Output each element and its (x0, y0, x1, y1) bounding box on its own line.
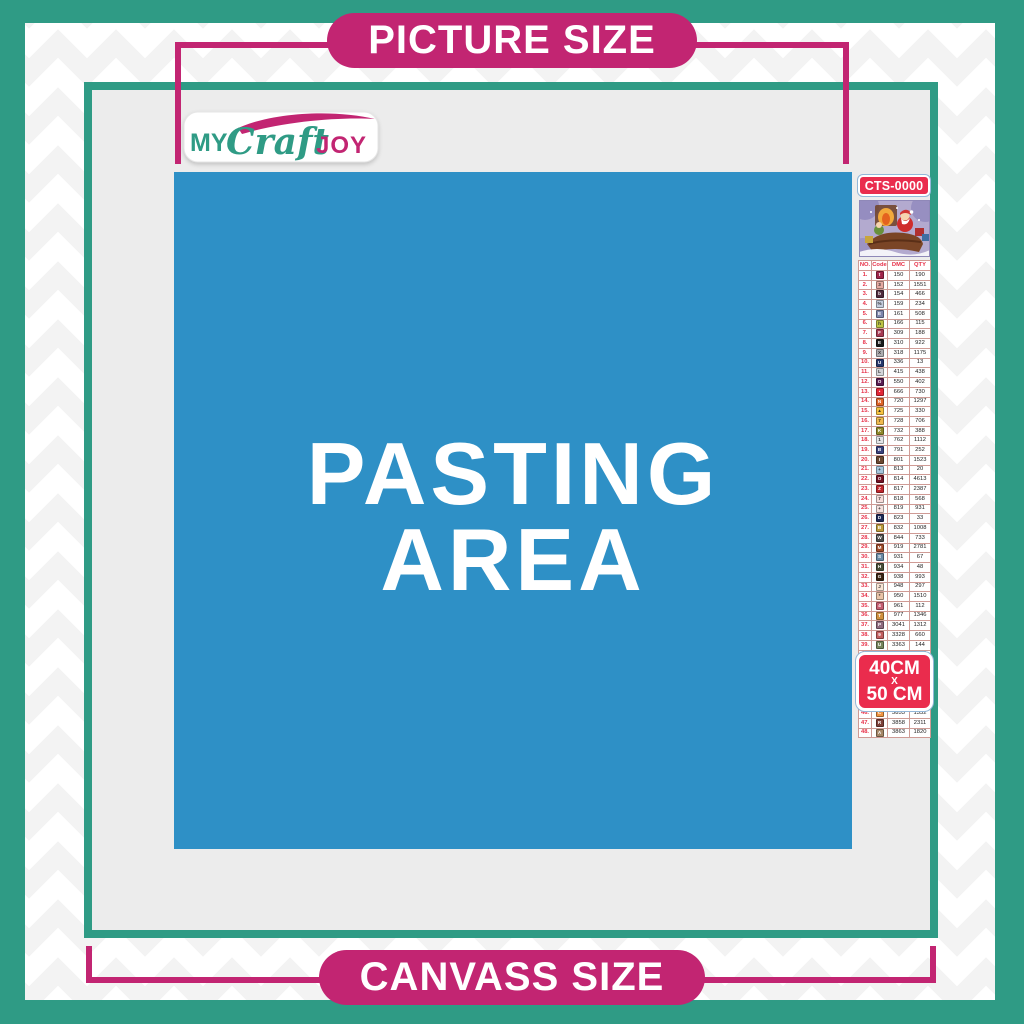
color-symbol-swatch: K (876, 427, 884, 435)
product-sheet: PICTURE SIZE CANVASS SIZE MY Craft JOY P… (0, 0, 1024, 1024)
color-symbol-swatch: L (876, 368, 884, 376)
chart-row: 15.▲725330 (859, 407, 931, 417)
chart-row: 19.B791252 (859, 446, 931, 456)
chart-row: 28.W844733 (859, 533, 931, 543)
color-symbol-swatch: N (876, 398, 884, 406)
color-symbol-swatch: 7 (876, 495, 884, 503)
chart-row: 36.T9771346 (859, 611, 931, 621)
color-symbol-swatch: G (876, 573, 884, 581)
pasting-area-label: PASTING AREA (307, 431, 720, 602)
color-symbol-swatch: 9 (876, 631, 884, 639)
chart-column-header: QTY (910, 261, 931, 271)
chart-row: 39.U3363144 (859, 640, 931, 650)
chart-row: 18.17621112 (859, 436, 931, 446)
logo-word-joy: JOY (316, 132, 367, 159)
chart-row: 8.E310922 (859, 339, 931, 349)
chart-row: 12.O550402 (859, 378, 931, 388)
chart-row: 13.•666730 (859, 387, 931, 397)
color-symbol-swatch: 1 (876, 436, 884, 444)
color-symbol-swatch: ▲ (876, 407, 884, 415)
color-symbol-swatch: 7 (876, 417, 884, 425)
color-symbol-swatch: 4 (876, 602, 884, 610)
chart-row: 2.31521551 (859, 280, 931, 290)
chart-row: 29.M9192781 (859, 543, 931, 553)
chart-row: 38.93328660 (859, 631, 931, 641)
color-symbol-swatch: * (876, 592, 884, 600)
size-badge: 40CM X 50 CM (856, 652, 933, 711)
chart-row: 14.N7201297 (859, 397, 931, 407)
color-symbol-swatch: A (876, 729, 884, 737)
chart-row: 26.D82333 (859, 514, 931, 524)
color-symbol-swatch: P (876, 621, 884, 629)
chart-row: 27.B8321008 (859, 524, 931, 534)
chart-row: 9.X3181175 (859, 348, 931, 358)
color-symbol-swatch: J (876, 583, 884, 591)
chart-row: 30.S93167 (859, 553, 931, 563)
chart-row: 34.*9501510 (859, 592, 931, 602)
color-symbol-swatch: t (876, 271, 884, 279)
color-symbol-swatch: T (876, 612, 884, 620)
chart-row: 6.h166115 (859, 319, 931, 329)
chart-row: 20.I8011523 (859, 455, 931, 465)
product-code-badge: CTS-0000 (858, 175, 930, 196)
picture-bracket-right (843, 42, 849, 164)
color-symbol-swatch: H (876, 563, 884, 571)
picture-bracket-left (175, 42, 181, 164)
picture-size-label: PICTURE SIZE (368, 18, 656, 63)
color-symbol-swatch: % (876, 300, 884, 308)
logo-word-my: MY (190, 129, 228, 157)
chart-row: 11.L415438 (859, 368, 931, 378)
color-symbol-swatch: M (876, 544, 884, 552)
chart-header-row: NO.CodeDMCQTY (859, 261, 931, 271)
chart-row: 32.G938993 (859, 572, 931, 582)
product-code: CTS-0000 (865, 179, 924, 193)
chart-row: 21.+81320 (859, 465, 931, 475)
chart-row: 48.A38631820 (859, 728, 931, 738)
chart-column-header: NO. (859, 261, 872, 271)
chart-row: 31.H93448 (859, 563, 931, 573)
chart-row: 23.Z8172387 (859, 485, 931, 495)
chart-row: 5.E161508 (859, 309, 931, 319)
color-symbol-swatch: • (876, 388, 884, 396)
color-symbol-swatch: F (876, 329, 884, 337)
color-symbol-swatch: X (876, 349, 884, 357)
color-symbol-swatch: h (876, 320, 884, 328)
color-symbol-swatch: 3 (876, 281, 884, 289)
chart-row: 22.O8144613 (859, 475, 931, 485)
size-width: 40CM (869, 660, 920, 677)
canvas-bracket-right (930, 946, 936, 983)
color-symbol-swatch: U (876, 359, 884, 367)
chart-row: 17.K732388 (859, 426, 931, 436)
chart-row: 3.b154466 (859, 290, 931, 300)
chart-row: 7.F309188 (859, 329, 931, 339)
design-preview-thumbnail (859, 200, 930, 257)
chart-row: 25.+819931 (859, 504, 931, 514)
chart-column-header: Code (872, 261, 888, 271)
canvass-size-label: CANVASS SIZE (360, 955, 665, 1000)
color-symbol-swatch: B (876, 524, 884, 532)
chart-row: 47.R38582311 (859, 718, 931, 728)
chart-row: 33.J948297 (859, 582, 931, 592)
color-symbol-swatch: D (876, 514, 884, 522)
chart-row: 4.%159234 (859, 300, 931, 310)
color-symbol-swatch: O (876, 378, 884, 386)
color-symbol-swatch: E (876, 339, 884, 347)
color-symbol-swatch: + (876, 466, 884, 474)
logo-word-craft: Craft (226, 121, 329, 163)
chart-row: 10.U33613 (859, 358, 931, 368)
pasting-area: PASTING AREA (174, 172, 852, 849)
chart-row: 35.4961112 (859, 601, 931, 611)
color-symbol-swatch: S (876, 553, 884, 561)
color-symbol-swatch: W (876, 534, 884, 542)
canvass-size-banner: CANVASS SIZE (319, 950, 705, 1005)
color-symbol-swatch: O (876, 475, 884, 483)
color-symbol-swatch: + (876, 505, 884, 513)
chart-row: 37.P30411312 (859, 621, 931, 631)
color-symbol-swatch: I (876, 456, 884, 464)
chart-row: 24.7818568 (859, 494, 931, 504)
canvas-bracket-left (86, 946, 92, 983)
brand-logo: MY Craft JOY (182, 104, 380, 168)
picture-size-banner: PICTURE SIZE (327, 13, 697, 68)
chart-column-header: DMC (888, 261, 910, 271)
color-symbol-swatch: B (876, 446, 884, 454)
color-symbol-swatch: U (876, 641, 884, 649)
color-symbol-swatch: R (876, 719, 884, 727)
size-height: 50 CM (867, 686, 923, 703)
chart-row: 16.7728706 (859, 417, 931, 427)
color-symbol-swatch: E (876, 310, 884, 318)
color-symbol-swatch: b (876, 290, 884, 298)
color-symbol-swatch: Z (876, 485, 884, 493)
chart-row: 1.t150190 (859, 271, 931, 281)
